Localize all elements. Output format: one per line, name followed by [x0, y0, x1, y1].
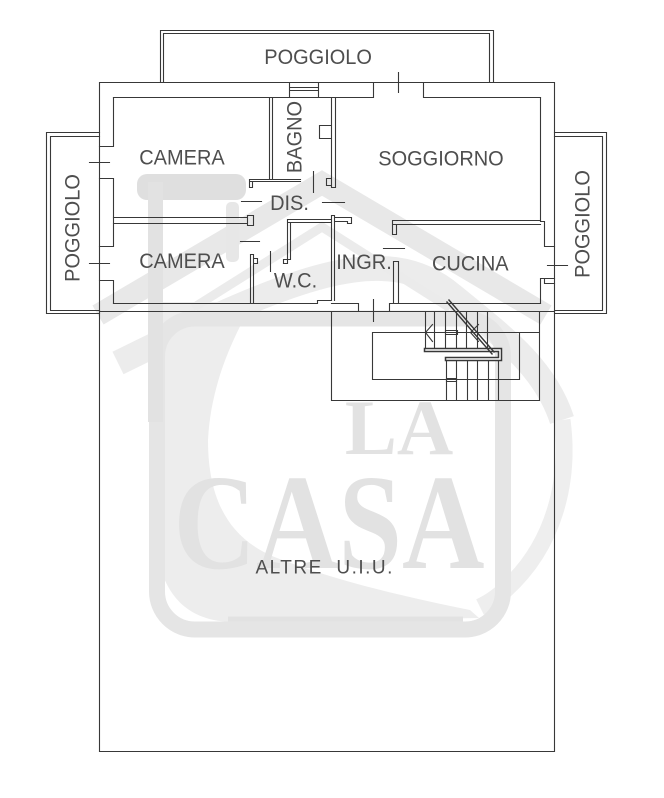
- svg-text:W.C.: W.C.: [274, 269, 317, 293]
- svg-text:SOGGIORNO: SOGGIORNO: [378, 147, 503, 171]
- svg-text:POGGIOLO: POGGIOLO: [61, 174, 85, 282]
- svg-text:CAMERA: CAMERA: [139, 146, 225, 170]
- svg-text:DIS.: DIS.: [270, 192, 309, 216]
- svg-text:POGGIOLO: POGGIOLO: [571, 170, 595, 278]
- svg-text:BAGNO: BAGNO: [283, 101, 307, 173]
- svg-text:ALTRE U.I.U.: ALTRE U.I.U.: [255, 558, 393, 579]
- svg-text:INGR.: INGR.: [336, 250, 392, 274]
- svg-text:CUCINA: CUCINA: [432, 252, 509, 276]
- svg-text:POGGIOLO: POGGIOLO: [264, 45, 372, 69]
- svg-text:CAMERA: CAMERA: [139, 249, 225, 273]
